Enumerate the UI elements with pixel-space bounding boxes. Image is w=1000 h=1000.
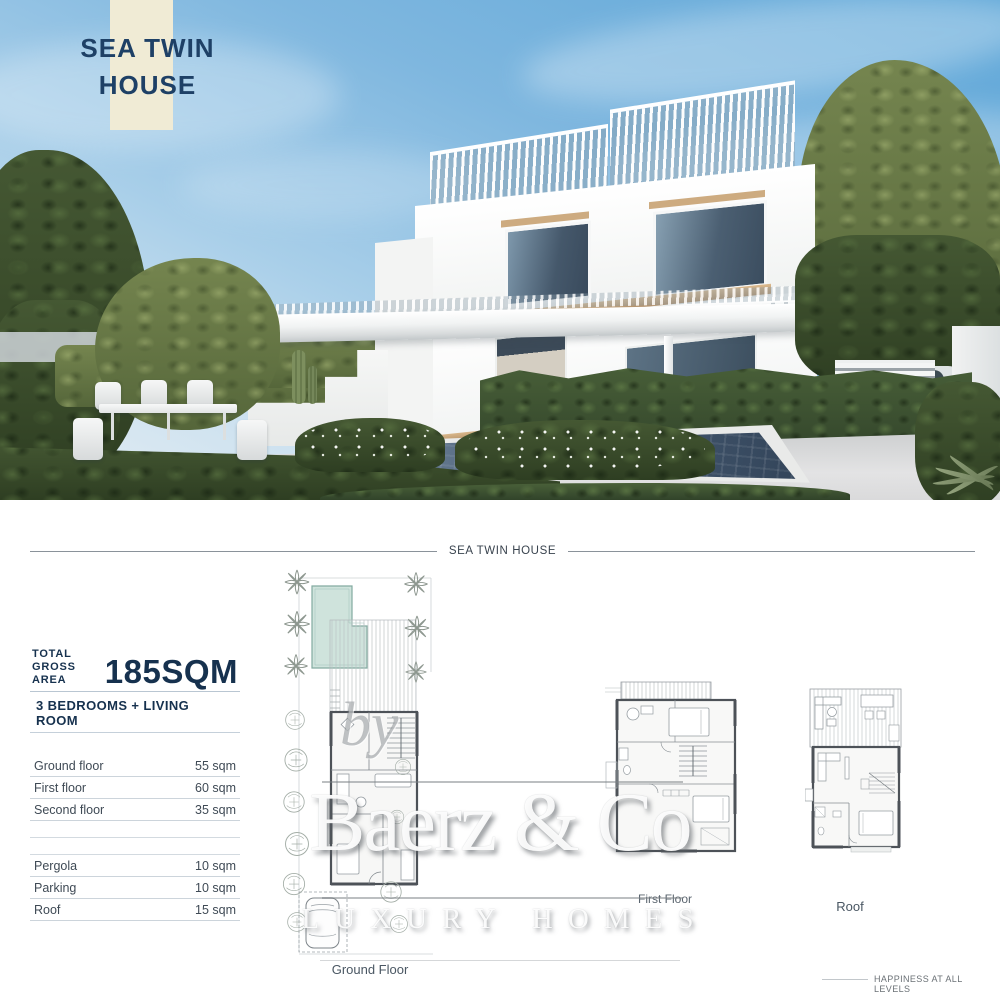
project-title-line1: SEA TWIN [45,30,250,67]
table-leg [223,413,226,440]
area-label: Parking [34,881,76,895]
divider-line-left [30,551,437,552]
area-value: 15 sqm [195,903,236,917]
villa-photo: SEA TWIN HOUSE [0,0,1000,500]
dining-chair [237,420,267,460]
total-gross-area-label: TOTAL GROSS AREA [32,648,93,687]
upper-window [653,200,767,298]
area-value: 55 sqm [195,759,236,773]
section-divider: SEA TWIN HOUSE [30,545,975,557]
table-row: Ground floor 55 sqm [30,755,240,777]
area-label: Roof [34,903,60,917]
cactus [308,366,317,404]
area-label: Second floor [34,803,104,817]
area-value: 10 sqm [195,881,236,895]
flower-blossoms [302,422,438,462]
specs-divider [30,732,240,733]
area-label: First floor [34,781,86,795]
specs-block: TOTAL GROSS AREA 185SQM 3 BEDROOMS + LIV… [30,648,240,921]
agave-plant [888,430,1000,500]
roof-label: Roof [810,899,890,914]
flower-blossoms [465,424,705,470]
table-spacer [30,838,240,855]
ground-floor-label: Ground Floor [300,962,440,977]
table-row: Parking 10 sqm [30,877,240,899]
divider-line-right [568,551,975,552]
total-label-line1: TOTAL [32,648,93,661]
total-gross-area-value: 185SQM [105,657,238,687]
table-leg [111,413,114,440]
total-label-line2: GROSS AREA [32,661,93,687]
dining-table [99,404,237,413]
area-label: Ground floor [34,759,103,773]
footer-tagline: HAPPINESS AT ALL LEVELS [874,974,1000,994]
table-row: Pergola 10 sqm [30,855,240,877]
table-row: First floor 60 sqm [30,777,240,799]
table-leg [167,413,170,440]
bedrooms-subtitle: 3 BEDROOMS + LIVING ROOM [30,692,240,732]
watermark-rule-bottom [320,960,680,961]
cactus [292,350,306,404]
footer-line [822,979,868,980]
area-label: Pergola [34,859,77,873]
section-title: SEA TWIN HOUSE [449,545,556,557]
outdoor-dining-set [55,370,285,475]
roof-plan [805,685,905,875]
dining-chair [73,418,103,460]
first-floor-label: First Floor [605,892,725,906]
first-floor-plan [605,678,745,890]
area-value: 60 sqm [195,781,236,795]
project-title-line2: HOUSE [45,67,250,104]
table-row: Roof 15 sqm [30,899,240,921]
project-title: SEA TWIN HOUSE [45,30,250,104]
area-value: 35 sqm [195,803,236,817]
area-value: 10 sqm [195,859,236,873]
table-row: Second floor 35 sqm [30,799,240,821]
ground-floor-plan [283,562,463,960]
area-table: Ground floor 55 sqm First floor 60 sqm S… [30,755,240,921]
brochure-page: SEA TWIN HOUSE SEA TWIN HOUSE TOTAL GROS… [0,0,1000,1000]
total-gross-area: TOTAL GROSS AREA 185SQM [30,648,240,687]
table-spacer [30,821,240,838]
